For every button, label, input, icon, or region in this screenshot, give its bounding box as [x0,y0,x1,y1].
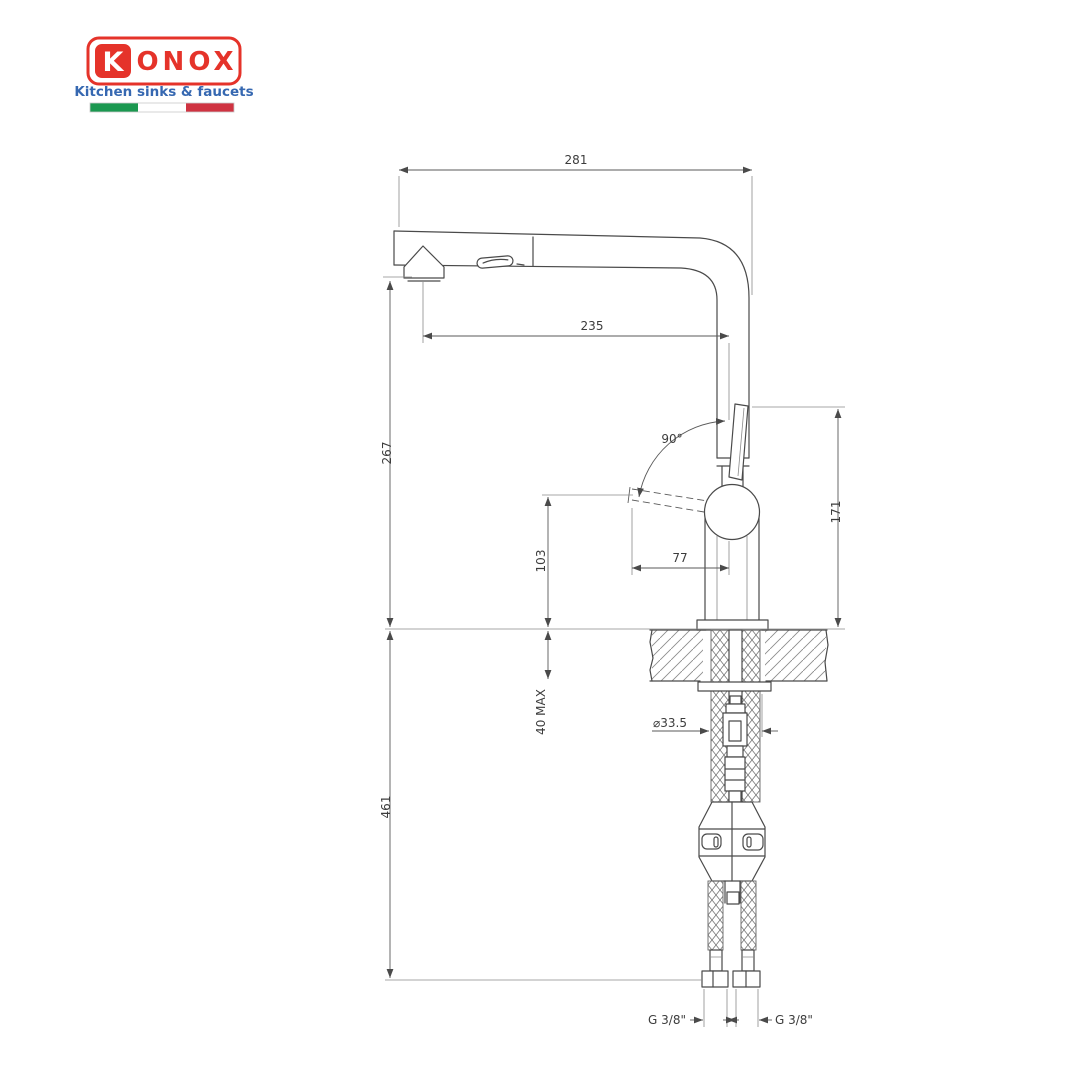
italy-flag-bar [90,103,234,112]
mounting-nut [698,682,771,691]
dim-thread-left-label: G 3/8" [648,1013,686,1027]
handle-rotated-ghost [628,487,714,513]
faucet-outline [394,231,768,630]
product-drawing-page: K ONOX Kitchen sinks & faucets [0,0,1080,1080]
logo-brand-rest: ONOX [136,47,237,77]
dim-counter-max-label: 40 MAX [534,689,548,735]
dim-body-height-label: 171 [829,501,843,524]
supply-nut-left [702,971,728,987]
spray-head-tip [404,246,444,278]
konox-logo: K ONOX Kitchen sinks & faucets [74,38,253,112]
dimension-annotations: 281 235 267 103 40 MAX 461 171 77 90° ⌀3… [379,153,845,1027]
dim-thread-right-label: G 3/8" [775,1013,813,1027]
hose-weight [699,802,765,881]
shank-and-hoses [698,630,771,987]
ball-joint [705,485,760,540]
hose-connector [723,696,747,802]
dim-hose-drop-label: 461 [379,796,393,819]
logo-tagline: Kitchen sinks & faucets [74,84,253,100]
dim-handle-angle-label: 90° [661,432,682,446]
dim-spout-height-label: 267 [380,442,394,465]
handle-lever [729,404,748,480]
technical-drawing-canvas: K ONOX Kitchen sinks & faucets [0,0,1080,1080]
logo-brand-initial: K [103,47,125,78]
dim-spout-reach-label: 235 [581,319,604,333]
supply-nut-right [733,971,760,987]
base-flange [697,620,768,630]
dim-spout-width-label: 281 [565,153,588,167]
dim-handle-to-counter-label: 103 [534,550,548,573]
countertop-section [650,630,828,681]
dim-handle-reach-label: 77 [672,551,687,565]
dim-hole-diameter-label: ⌀33.5 [653,716,687,730]
